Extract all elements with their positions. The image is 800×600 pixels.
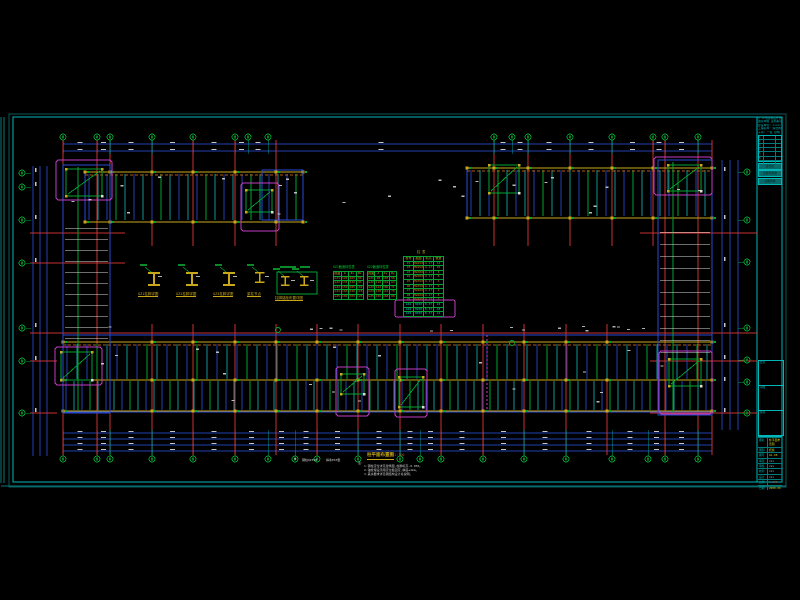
table-b-title: GZ2截面特性表 (367, 266, 389, 270)
titleblock-stamp-bar: 会签栏 (758, 163, 782, 170)
titleblock-stamp-bar: 注册师章 (758, 178, 782, 185)
titleblock-row: 校对××× (758, 468, 782, 473)
notes-label: 注: (358, 462, 363, 466)
detail-caption-3: GZ3柱脚详图 (213, 292, 233, 297)
titleblock-row: 审核××× (758, 463, 782, 468)
table-c-title: 柱 表 (417, 251, 425, 255)
titleblock-box: 审图 (758, 385, 784, 411)
titleblock-row: 图别结施 (758, 447, 782, 452)
titleblock-stamp-bar: 出图专用章 (758, 170, 782, 177)
titleblock-header-line: 子项: 一区 结构 (758, 131, 782, 134)
cad-sheet: GZ1柱脚详图 GZ2柱脚详图 GZ3柱脚详图 梁柱节点 柱脚锚栓布置详图 GZ… (0, 0, 800, 600)
table-a-title: GZ1截面特性表 (333, 266, 355, 270)
detail-caption-1: GZ1柱脚详图 (138, 292, 158, 297)
titleblock-row: 审定××× (758, 458, 782, 463)
titleblock-box: 备案 (758, 410, 784, 436)
revision-table: 1234567 (758, 135, 782, 162)
legend-text-1: 钢柱Q235B (302, 458, 317, 462)
titleblock-row: 设计××× (758, 474, 782, 479)
note-line-3: 3.其余要求详见钢结构设计总说明。 (364, 473, 413, 477)
titleblock-bottom-rows: 图名柱平面布置图图别结施图号GS-08审定×××审核×××校对×××设计×××比… (758, 436, 782, 490)
plan-scale: 1:100 (394, 453, 405, 457)
legend-symbol: ⊕ (294, 456, 296, 461)
titleblock-row: 日期2008.06 (758, 485, 782, 490)
detail-caption-5: 柱脚锚栓布置详图 (275, 296, 303, 301)
column-schedule-table: 柱号截面标高数量Z1HW2504.1712Z2HW2504.1710Z3HW30… (403, 256, 444, 317)
section-table-gz1: 截面AIxWxGZ112046086GZ213552094GZ315058510… (333, 271, 364, 300)
detail-caption-2: GZ2柱脚详图 (176, 292, 196, 297)
titleblock-box: 会签 (758, 360, 784, 386)
title-block: □ ××市建筑设计研究院国家甲级 证书编号 A-123建设单位: ×××××工程… (758, 117, 782, 482)
plan-title: 柱平面布置图 (367, 452, 394, 460)
section-table-gz2: 截面AIyWyGZ19830558GZ211034264GZ312438071G… (367, 271, 397, 300)
titleblock-row: 比例1:100 (758, 479, 782, 484)
titleblock-row: 图号GS-08 (758, 452, 782, 457)
titleblock-row: 图名柱平面布置图 (758, 437, 782, 447)
floor-plan-drawing (0, 0, 800, 600)
detail-caption-4: 梁柱节点 (247, 292, 261, 297)
legend-text-2: 焊条E43型 (326, 458, 340, 462)
